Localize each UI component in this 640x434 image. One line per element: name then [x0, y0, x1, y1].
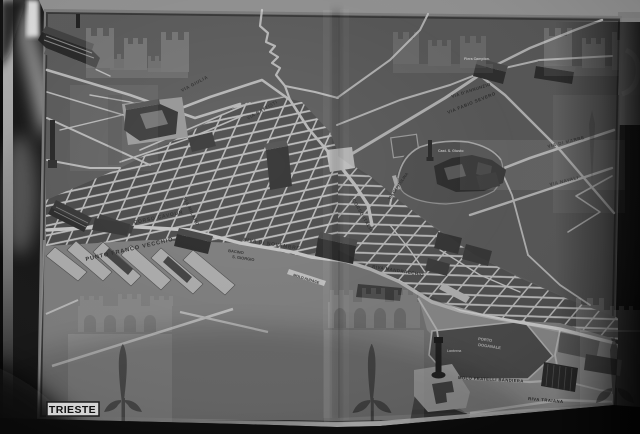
svg-text:TRIESTE: TRIESTE: [49, 404, 96, 416]
